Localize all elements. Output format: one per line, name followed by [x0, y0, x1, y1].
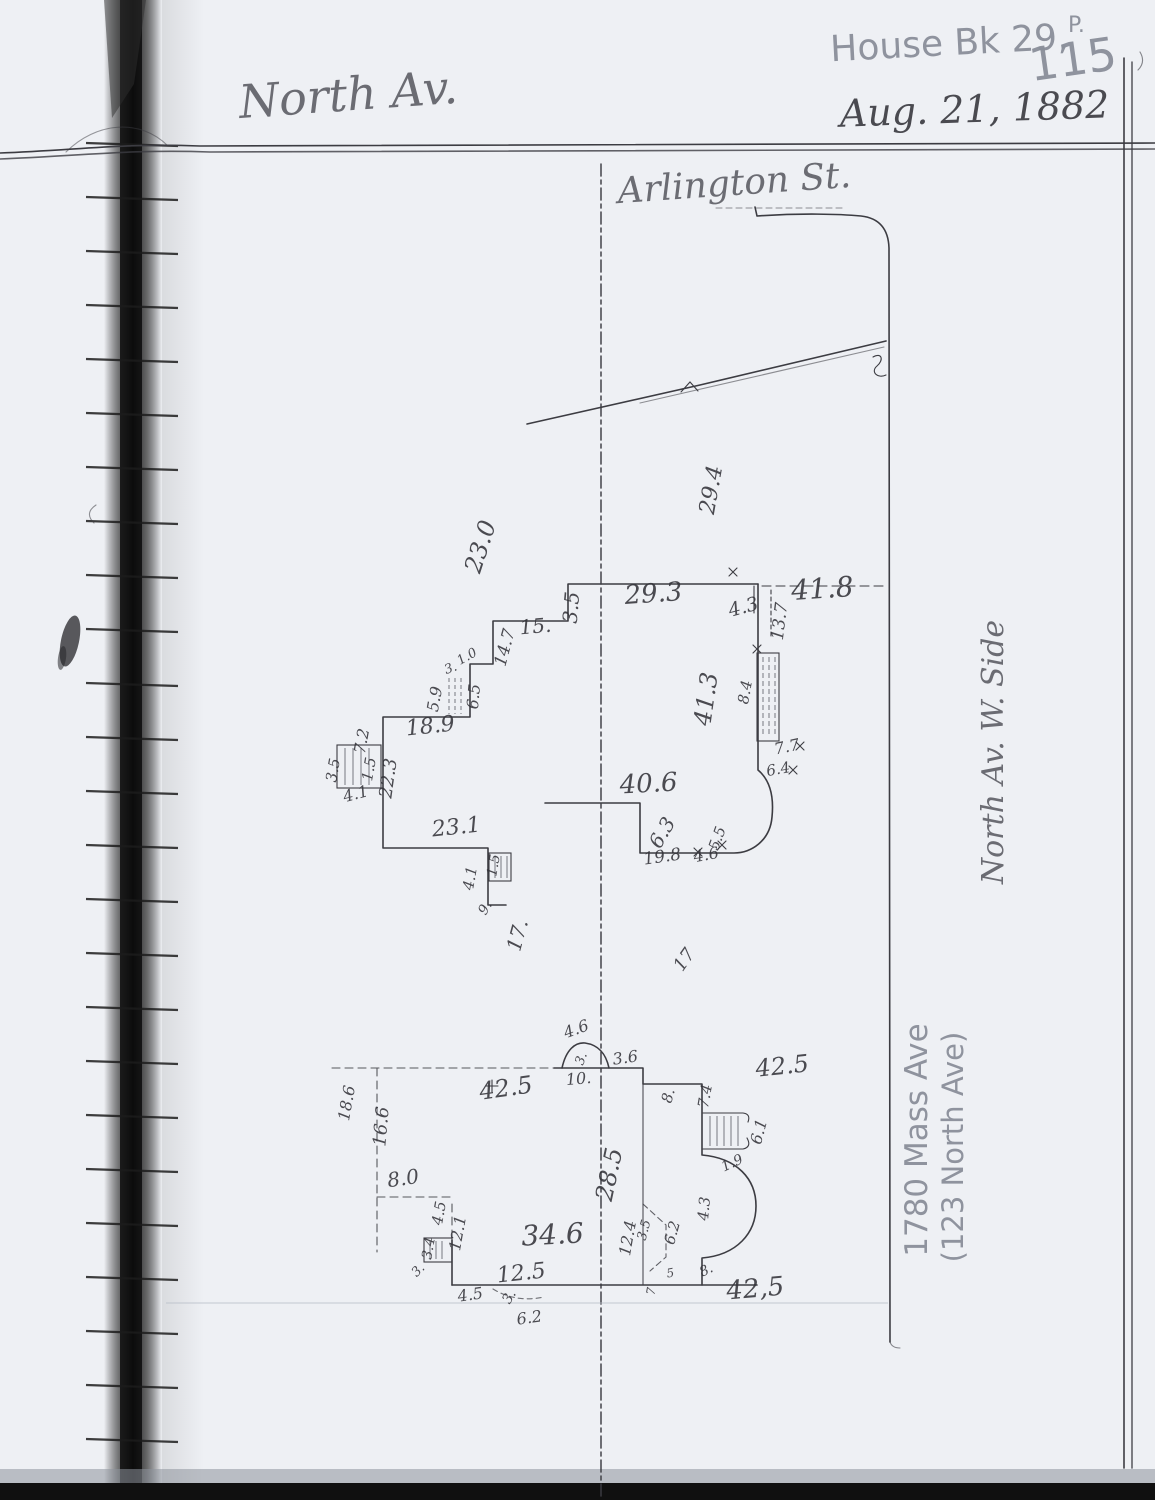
street-name-north-av-top: North Av.	[236, 60, 459, 129]
dim-5: 5	[665, 1266, 675, 1281]
dim-5-9: 5.9	[423, 685, 446, 713]
dim-10: 10.	[565, 1068, 592, 1089]
dim-3-curve: 3.	[499, 1287, 520, 1307]
dim-15: 15.	[518, 613, 552, 640]
street-name-north-av-right: North Av. W. Side	[976, 620, 1011, 885]
dim-6-4: 6.4	[765, 758, 792, 780]
dim-8-4: 8.4	[734, 679, 756, 706]
binding-gutter	[86, 0, 204, 1500]
dim-29-4: 29.4	[695, 464, 728, 518]
dim-3-steps: 3.	[409, 1261, 428, 1280]
dim-12-1: 12.1	[445, 1214, 470, 1252]
dim-18-9: 18.9	[405, 712, 456, 742]
dim-7-2: 7.2	[350, 727, 373, 755]
dim-3-bump: 3.	[573, 1050, 591, 1067]
street-name-arlington: Arlington St.	[613, 155, 852, 212]
dim-42-5a: 42.5	[476, 1070, 534, 1105]
door-hatch-lines	[763, 657, 775, 737]
dim-4-1a: 4.1	[340, 781, 370, 806]
dim-6-5: 6.5	[463, 683, 484, 710]
upper-building-plan: 23.0 29.3 41.8 3.5 4.3 13.7 15. 14.7 1.0…	[322, 464, 884, 976]
dim-1-5a: 1.5	[358, 756, 380, 783]
dim-4-5a: 4.5	[428, 1200, 450, 1228]
dim-8a: 8.	[658, 1086, 679, 1104]
dim-14-7: 14.7	[491, 627, 520, 669]
dim-40-6: 40.6	[618, 768, 678, 801]
dim-4-5b: 4.5	[455, 1283, 484, 1305]
address-note-modern: 1780 Mass Ave	[899, 1023, 935, 1256]
dim-7-7: 7.7	[772, 735, 802, 759]
dim-19-8: 19.8	[642, 844, 682, 869]
dim-3-5a: 3.5	[558, 590, 585, 624]
dim-29-3: 29.3	[623, 577, 684, 611]
scanned-survey-page: 23.0 29.3 41.8 3.5 4.3 13.7 15. 14.7 1.0…	[0, 0, 1155, 1500]
date-note: Aug. 21, 1882	[836, 82, 1110, 135]
dim-23-1: 23.1	[430, 813, 482, 843]
dim-28-5: 28.5	[590, 1145, 629, 1204]
dim-34-6: 34.6	[521, 1216, 585, 1252]
squiggle-mark	[873, 355, 886, 376]
dim-4-1b: 4.1	[459, 865, 481, 893]
dim-17b: 17	[669, 944, 700, 975]
dim-41-8: 41.8	[789, 570, 854, 607]
dim-6-2b: 6.2	[515, 1306, 543, 1328]
margin-smudges	[56, 505, 96, 670]
dim-22-3: 22.3	[375, 757, 402, 801]
dim-6-2a: 6.2	[660, 1219, 684, 1247]
dim-18-6: 18.6	[334, 1084, 359, 1122]
dim-7: 7	[644, 1286, 659, 1296]
dim-9: 9.	[475, 898, 496, 918]
dim-6-1: 6.1	[746, 1117, 771, 1147]
dim-8-0: 8.0	[386, 1164, 421, 1192]
dim-4-3: 4.3	[725, 593, 761, 622]
survey-sketch-canvas: 23.0 29.3 41.8 3.5 4.3 13.7 15. 14.7 1.0…	[0, 0, 1155, 1500]
dim-4-6b: 4.6	[560, 1016, 591, 1043]
dim-7-4: 7.4	[694, 1083, 716, 1110]
dim-8b: 8.	[697, 1260, 716, 1280]
dim-3-5b: 3.5	[322, 757, 344, 784]
diagonal-sight-line	[527, 341, 886, 424]
door-hatch-right	[757, 653, 779, 741]
address-note-old: (123 North Ave)	[936, 1032, 970, 1263]
dim-4-3-arc: 4.3	[694, 1196, 714, 1222]
dim-16-6: 16.6	[369, 1106, 393, 1148]
page-annotations: North Av. Aug. 21, 1882 House Bk 29, P. …	[236, 13, 1120, 1262]
dim-23-0: 23.0	[459, 517, 502, 577]
dim-3: 3.	[442, 660, 459, 678]
dim-42-5b: 42.5	[753, 1049, 810, 1083]
dim-42-5c: 42,5	[724, 1272, 785, 1307]
dim-1-0: 1.0	[455, 645, 480, 668]
dim-5-5: 5.5	[705, 824, 730, 853]
lower-building-plan: 18.6 16.6 8.0 42.5 4.6 3. 3.6 10. 8. 7.4…	[332, 1016, 810, 1329]
porch-hatch-lines	[710, 1116, 738, 1146]
lower-outline-main	[554, 1068, 756, 1285]
dim-3-6: 3.6	[611, 1046, 639, 1068]
dim-13-7: 13.7	[768, 601, 792, 641]
dim-17a: 17.	[502, 917, 533, 954]
porch-hatch-small	[449, 678, 461, 714]
dim-41-3: 41.3	[688, 670, 723, 728]
dim-12-5: 12.5	[496, 1259, 547, 1289]
